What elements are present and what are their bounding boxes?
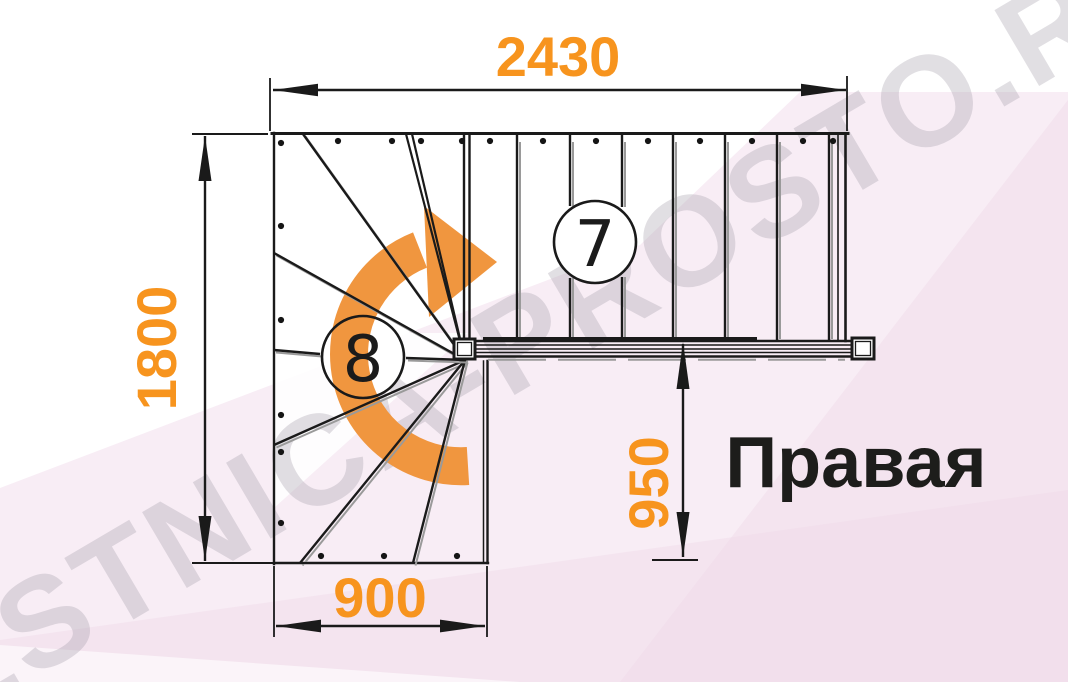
- screw-dot: [459, 138, 465, 144]
- screw-dot: [697, 138, 703, 144]
- screw-dot: [318, 553, 324, 559]
- screw-dot: [487, 138, 493, 144]
- screw-dot: [381, 553, 387, 559]
- screw-dot: [454, 553, 460, 559]
- screw-dot: [278, 449, 284, 455]
- dim-950-value: 950: [617, 436, 680, 529]
- screw-dot: [278, 223, 284, 229]
- screw-dot: [540, 138, 546, 144]
- screw-dot: [278, 140, 284, 146]
- screw-dot: [335, 138, 341, 144]
- screw-dot: [278, 412, 284, 418]
- screw-dot: [830, 138, 836, 144]
- screw-dot: [800, 138, 806, 144]
- screw-dot: [389, 138, 395, 144]
- dim-left-value: 1800: [125, 286, 188, 411]
- screw-dot: [749, 138, 755, 144]
- screw-dot: [593, 138, 599, 144]
- stair-plan-drawing: LESTNICA-PROSTO.RU: [0, 0, 1068, 682]
- screw-dot: [278, 520, 284, 526]
- stringer-beam: [454, 338, 874, 360]
- flight-count-number: 7: [575, 208, 616, 282]
- stair-plan-canvas: LESTNICA-PROSTO.RU: [0, 0, 1068, 682]
- winder-count-number: 8: [343, 323, 384, 397]
- dim-bottom-value: 900: [333, 566, 426, 629]
- screw-dot: [278, 317, 284, 323]
- direction-label: Правая: [725, 423, 986, 503]
- screw-dot: [645, 138, 651, 144]
- dim-top-value: 2430: [496, 25, 621, 88]
- screw-dot: [418, 138, 424, 144]
